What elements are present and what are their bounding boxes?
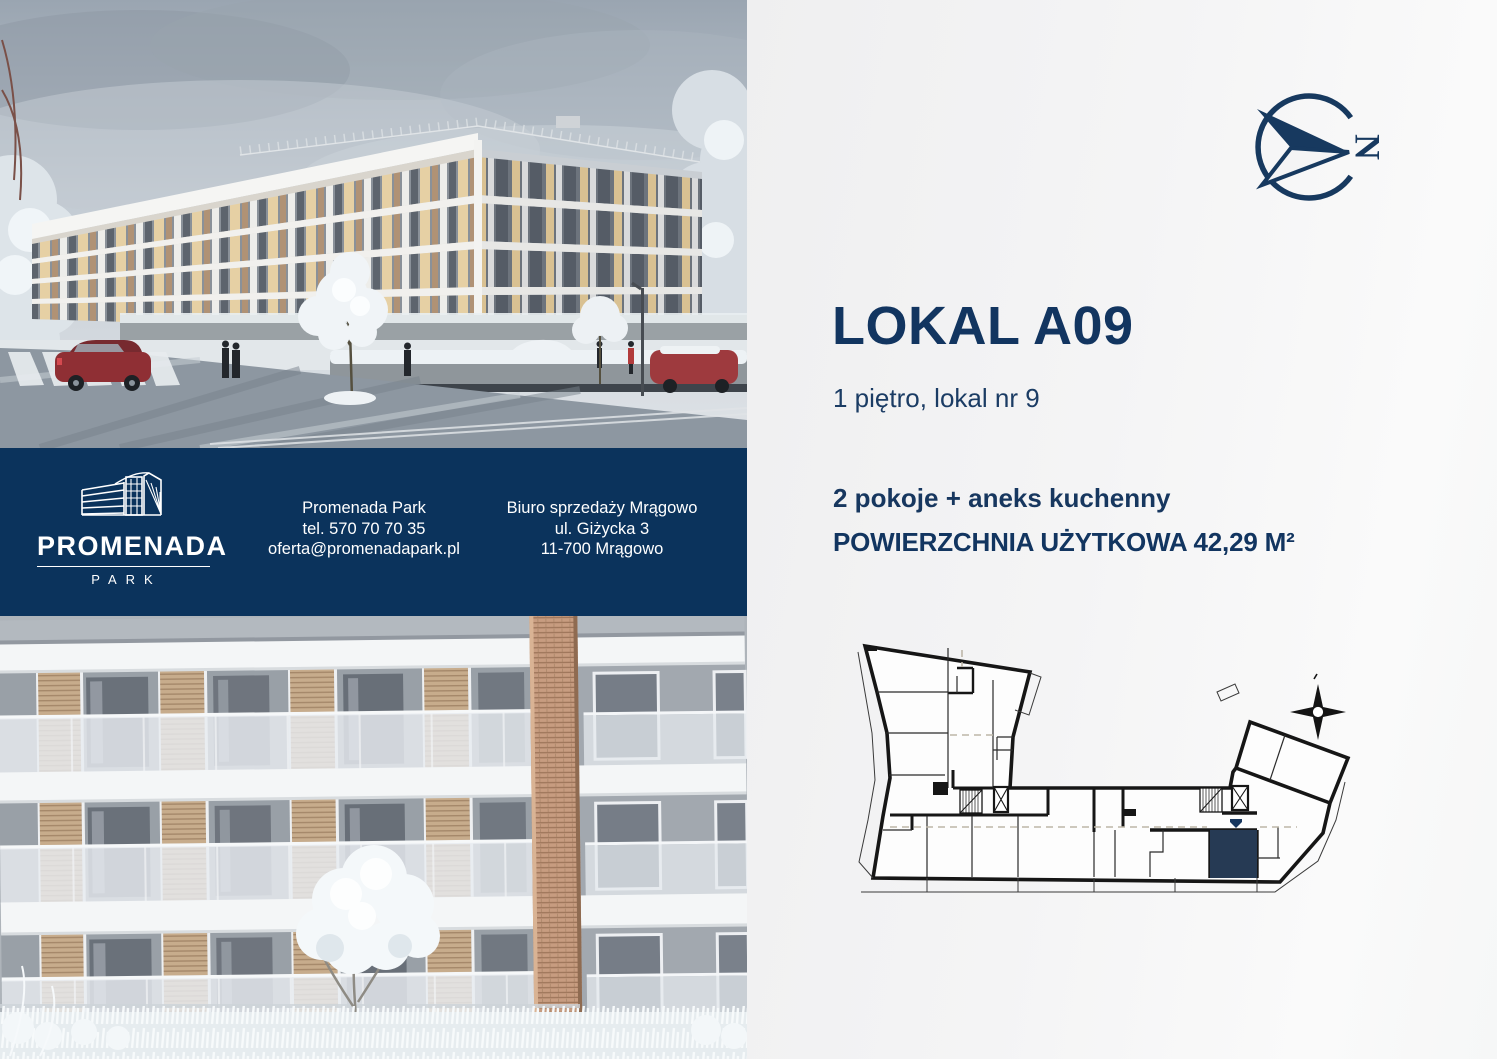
plan-compass-star xyxy=(1290,674,1346,740)
unit-title: LOKAL A09 xyxy=(832,295,1134,357)
brand-divider xyxy=(37,566,210,567)
office-street: ul. Giżycka 3 xyxy=(482,519,722,540)
office-name: Biuro sprzedaży Mrągowo xyxy=(482,498,722,519)
contact-column-company: Promenada Park tel. 570 70 70 35 oferta@… xyxy=(244,498,484,560)
brand-contact-band: PROMENADA PARK Promenada Park tel. 570 7… xyxy=(0,448,747,616)
unit-area-line: POWIERZCHNIA UŻYTKOWA 42,29 M² xyxy=(833,527,1295,558)
contact-email: oferta@promenadapark.pl xyxy=(244,539,484,560)
compass-north-letter: N xyxy=(1347,134,1387,160)
brand-logo-block: PROMENADA PARK xyxy=(37,468,210,587)
building-render-photo-top xyxy=(0,0,747,448)
compass-arrow-outline xyxy=(1262,148,1349,185)
flyer-page: PROMENADA PARK Promenada Park tel. 570 7… xyxy=(0,0,1497,1059)
brand-name: PROMENADA xyxy=(37,531,210,562)
office-city: 11-700 Mrągowo xyxy=(482,539,722,560)
contact-phone: tel. 570 70 70 35 xyxy=(244,519,484,540)
logo-building-icon xyxy=(37,468,210,518)
unit-info-panel: N LOKAL A09 1 piętro, lokal nr 9 2 pokoj… xyxy=(747,0,1497,1059)
brand-subname: PARK xyxy=(43,572,210,587)
contact-column-office: Biuro sprzedaży Mrągowo ul. Giżycka 3 11… xyxy=(482,498,722,560)
facade xyxy=(0,616,747,1037)
selected-unit-a09-shape xyxy=(1210,830,1257,878)
building-render-photo-bottom xyxy=(0,616,747,1059)
contact-company: Promenada Park xyxy=(244,498,484,519)
left-column: PROMENADA PARK Promenada Park tel. 570 7… xyxy=(0,0,747,1059)
brick-pier xyxy=(529,616,582,1026)
floor-plan-drawing xyxy=(845,620,1405,920)
compass-north-icon: N xyxy=(1244,90,1389,208)
unit-layout-line: 2 pokoje + aneks kuchenny xyxy=(833,483,1170,514)
unit-floor-line: 1 piętro, lokal nr 9 xyxy=(833,383,1040,414)
